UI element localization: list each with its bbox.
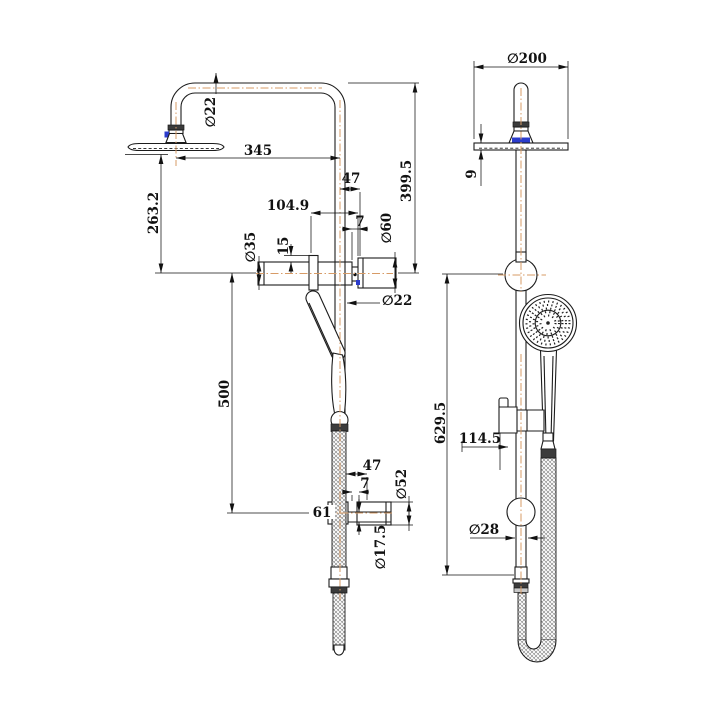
rain-head-connector [165, 125, 187, 143]
dim-label: ∅17.5 [373, 525, 389, 569]
diverter-collar [309, 256, 318, 291]
dim-label: 47 [363, 458, 382, 474]
dim-61: 61 [309, 505, 335, 521]
dim-label: ∅22 [203, 97, 219, 127]
dim-label: 500 [217, 380, 233, 408]
dim-label: 47 [342, 171, 361, 187]
dim-label: ∅35 [243, 232, 259, 262]
dim-label: 114.5 [459, 431, 501, 447]
rail-end-flange-side [329, 579, 349, 587]
dim-label: 15 [276, 237, 292, 256]
dim-label: 629.5 [433, 402, 449, 444]
rail-end-sleeve-side [331, 567, 347, 579]
dim-label: ∅28 [469, 522, 499, 538]
hand-shower-handle-side [332, 353, 346, 413]
dim-label: ∅52 [394, 469, 410, 499]
dim-label: ∅60 [379, 213, 395, 243]
hose-end-cap [334, 645, 344, 655]
dim-label: 263.2 [146, 192, 162, 234]
technical-drawing: ∅22 345 47 399.5 263.2 104.9 [0, 0, 720, 720]
dim-label: 7 [360, 476, 369, 492]
dim-label: 61 [313, 505, 332, 521]
hose-coupler-side [331, 587, 347, 593]
dim-label: 345 [244, 143, 272, 159]
dim-label: 399.5 [399, 160, 415, 202]
page-background [0, 0, 720, 720]
dim-label: 7 [355, 214, 364, 230]
dim-label: 104.9 [267, 198, 309, 214]
dim-label: 9 [464, 169, 480, 178]
dim-label: ∅22 [382, 293, 412, 309]
dim-label: ∅200 [507, 51, 547, 67]
face-center-dot [546, 321, 550, 325]
blue-outlet-mark [356, 280, 360, 285]
